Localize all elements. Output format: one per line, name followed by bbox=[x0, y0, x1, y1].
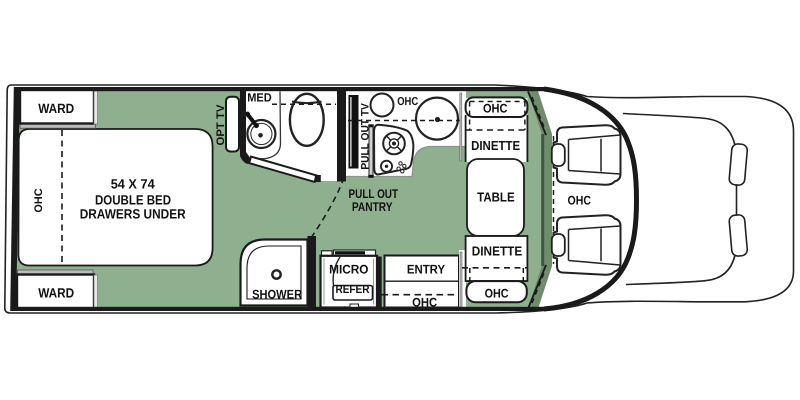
svg-text:MED: MED bbox=[247, 90, 272, 104]
svg-text:OPT TV: OPT TV bbox=[215, 104, 227, 146]
svg-text:OHC: OHC bbox=[483, 102, 508, 116]
svg-text:WARD: WARD bbox=[38, 285, 74, 300]
svg-text:DOUBLE BED: DOUBLE BED bbox=[95, 193, 171, 208]
svg-text:DINETTE: DINETTE bbox=[471, 138, 520, 153]
svg-text:REFER: REFER bbox=[336, 284, 371, 296]
svg-text:OHC: OHC bbox=[485, 287, 509, 301]
svg-text:PULL OUT: PULL OUT bbox=[349, 187, 399, 201]
svg-text:OHC: OHC bbox=[397, 96, 418, 108]
svg-text:DRAWERS UNDER: DRAWERS UNDER bbox=[80, 207, 186, 222]
svg-text:PANTRY: PANTRY bbox=[352, 200, 393, 214]
svg-text:ENTRY: ENTRY bbox=[407, 263, 446, 277]
svg-text:OHC: OHC bbox=[568, 194, 592, 208]
svg-text:TABLE: TABLE bbox=[477, 190, 515, 205]
svg-text:OHC: OHC bbox=[33, 188, 45, 212]
svg-text:DINETTE: DINETTE bbox=[472, 244, 523, 259]
svg-text:SHOWER: SHOWER bbox=[252, 288, 302, 302]
svg-text:54 X 74: 54 X 74 bbox=[111, 177, 155, 192]
svg-text:WARD: WARD bbox=[38, 101, 74, 116]
